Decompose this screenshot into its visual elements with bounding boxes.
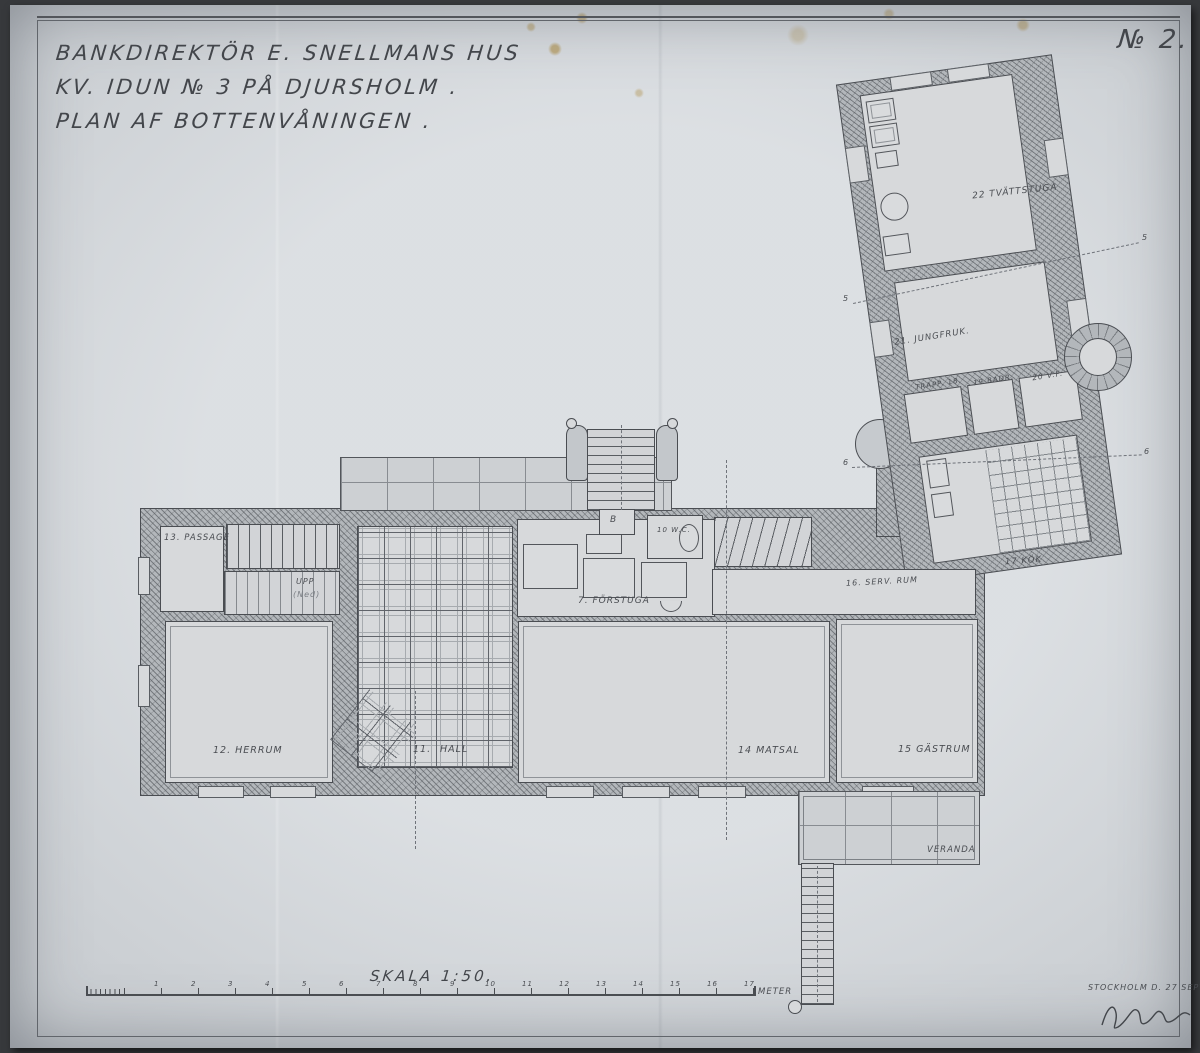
- label-hall-number: 11.: [413, 744, 431, 755]
- label-matsal: 14 MATSAL: [738, 745, 800, 756]
- scale-tick-label: 14: [633, 980, 644, 988]
- scale-tick-label: 6: [339, 980, 344, 988]
- porch-volute: [667, 418, 678, 429]
- furniture: [583, 558, 635, 598]
- label-gastrum: 15 GÄSTRUM: [898, 744, 971, 755]
- scale-label: SKALA 1:50.: [369, 967, 495, 985]
- scale-tick-label: 15: [670, 980, 681, 988]
- stair-scroll-end: [788, 1000, 802, 1014]
- stair-upper-run: [226, 524, 340, 569]
- wash-tub: [866, 98, 897, 124]
- porch-scroll-wall: [566, 425, 588, 481]
- scale-tick-label: 12: [559, 980, 570, 988]
- scale-tick-label: 17: [744, 980, 755, 988]
- axis-line: [726, 460, 727, 840]
- room-gastrum: [836, 619, 978, 783]
- wash-tub: [869, 123, 900, 149]
- room-bad-19: [967, 379, 1020, 435]
- section-marker-6: 6: [1144, 447, 1150, 456]
- drain-grate: [875, 150, 899, 169]
- section-marker-6: 6: [843, 458, 849, 467]
- scale-tick-label: 10: [485, 980, 496, 988]
- room-herrum: [165, 621, 333, 783]
- scale-tick-label: 3: [228, 980, 233, 988]
- section-marker-5: 5: [1142, 233, 1148, 242]
- porch-volute: [566, 418, 577, 429]
- room-servrum: [712, 569, 976, 615]
- window: [546, 786, 594, 798]
- scale-unit-label: METER: [758, 987, 792, 997]
- stair-lower-run: [224, 571, 340, 615]
- drawing-sheet: BANKDIREKTÖR E. SNELLMANS HUS KV. IDUN №…: [10, 5, 1191, 1048]
- axis-line: [415, 691, 416, 849]
- label-hall: HALL: [440, 744, 468, 755]
- room-tvattstuga: [860, 74, 1037, 272]
- kitchen-tile-floor: [985, 438, 1091, 554]
- room-wc: [647, 515, 703, 559]
- axis-line: [621, 425, 622, 510]
- window: [198, 786, 244, 798]
- winder-stair: [714, 517, 812, 567]
- room-kok: [919, 434, 1092, 563]
- room-trapp-18: [904, 386, 968, 444]
- scale-bar-ticks: [124, 988, 755, 995]
- window: [698, 786, 746, 798]
- label-stair-down: (Ned): [293, 590, 320, 599]
- label-forstuga: 7. FÖRSTUGA: [578, 596, 650, 606]
- scale-tick-label: 5: [302, 980, 307, 988]
- section-marker-5: 5: [843, 294, 849, 303]
- kitchen-fixture: [931, 492, 954, 519]
- window: [138, 557, 150, 595]
- scale-tick-label: 16: [707, 980, 718, 988]
- room-jungfrukammare: [894, 261, 1058, 381]
- label-herrum: 12. HERRUM: [213, 745, 283, 756]
- scale-bar-end: [86, 986, 88, 996]
- boiler: [879, 191, 911, 223]
- scale-tick-label: 4: [265, 980, 270, 988]
- label-b: B: [610, 515, 617, 525]
- scale-tick-label: 2: [191, 980, 196, 988]
- furniture: [641, 562, 687, 598]
- furniture: [586, 534, 622, 554]
- sheet-top-rule: [37, 16, 1180, 18]
- scale-tick-label: 9: [450, 980, 455, 988]
- stair-turret-core: [1079, 338, 1117, 376]
- drawing-title-line-2: KV. IDUN № 3 PÅ DJURSHOLM .: [55, 75, 461, 99]
- scale-tick-label: 8: [413, 980, 418, 988]
- scale-tick-label: 11: [522, 980, 533, 988]
- architect-signature: [1098, 997, 1198, 1037]
- scale-bar-subdivisions: [86, 989, 124, 995]
- porch-scroll-wall: [656, 425, 678, 481]
- sheet-number: № 2.: [1116, 25, 1191, 55]
- drawing-title-line-3: PLAN AF BOTTENVÅNINGEN .: [55, 109, 434, 133]
- scale-tick-label: 7: [376, 980, 381, 988]
- stove-table: [883, 233, 912, 256]
- label-passage: 13. PASSAGE: [164, 533, 230, 543]
- label-wc: 10 W.C.: [657, 526, 691, 534]
- window: [622, 786, 670, 798]
- furniture: [523, 544, 578, 589]
- window: [270, 786, 316, 798]
- place-date: STOCKHOLM D. 27 SEPT. 97.: [1088, 983, 1200, 992]
- room-matsal: [518, 621, 830, 783]
- garden-stair-centerline: [817, 866, 818, 1002]
- drawing-title-line-1: BANKDIREKTÖR E. SNELLMANS HUS: [55, 41, 522, 65]
- scale-tick-label: 13: [596, 980, 607, 988]
- label-stair-up: UPP: [296, 577, 315, 586]
- label-veranda: VERANDA: [927, 845, 976, 855]
- scale-tick-label: 1: [154, 980, 159, 988]
- window: [138, 665, 150, 707]
